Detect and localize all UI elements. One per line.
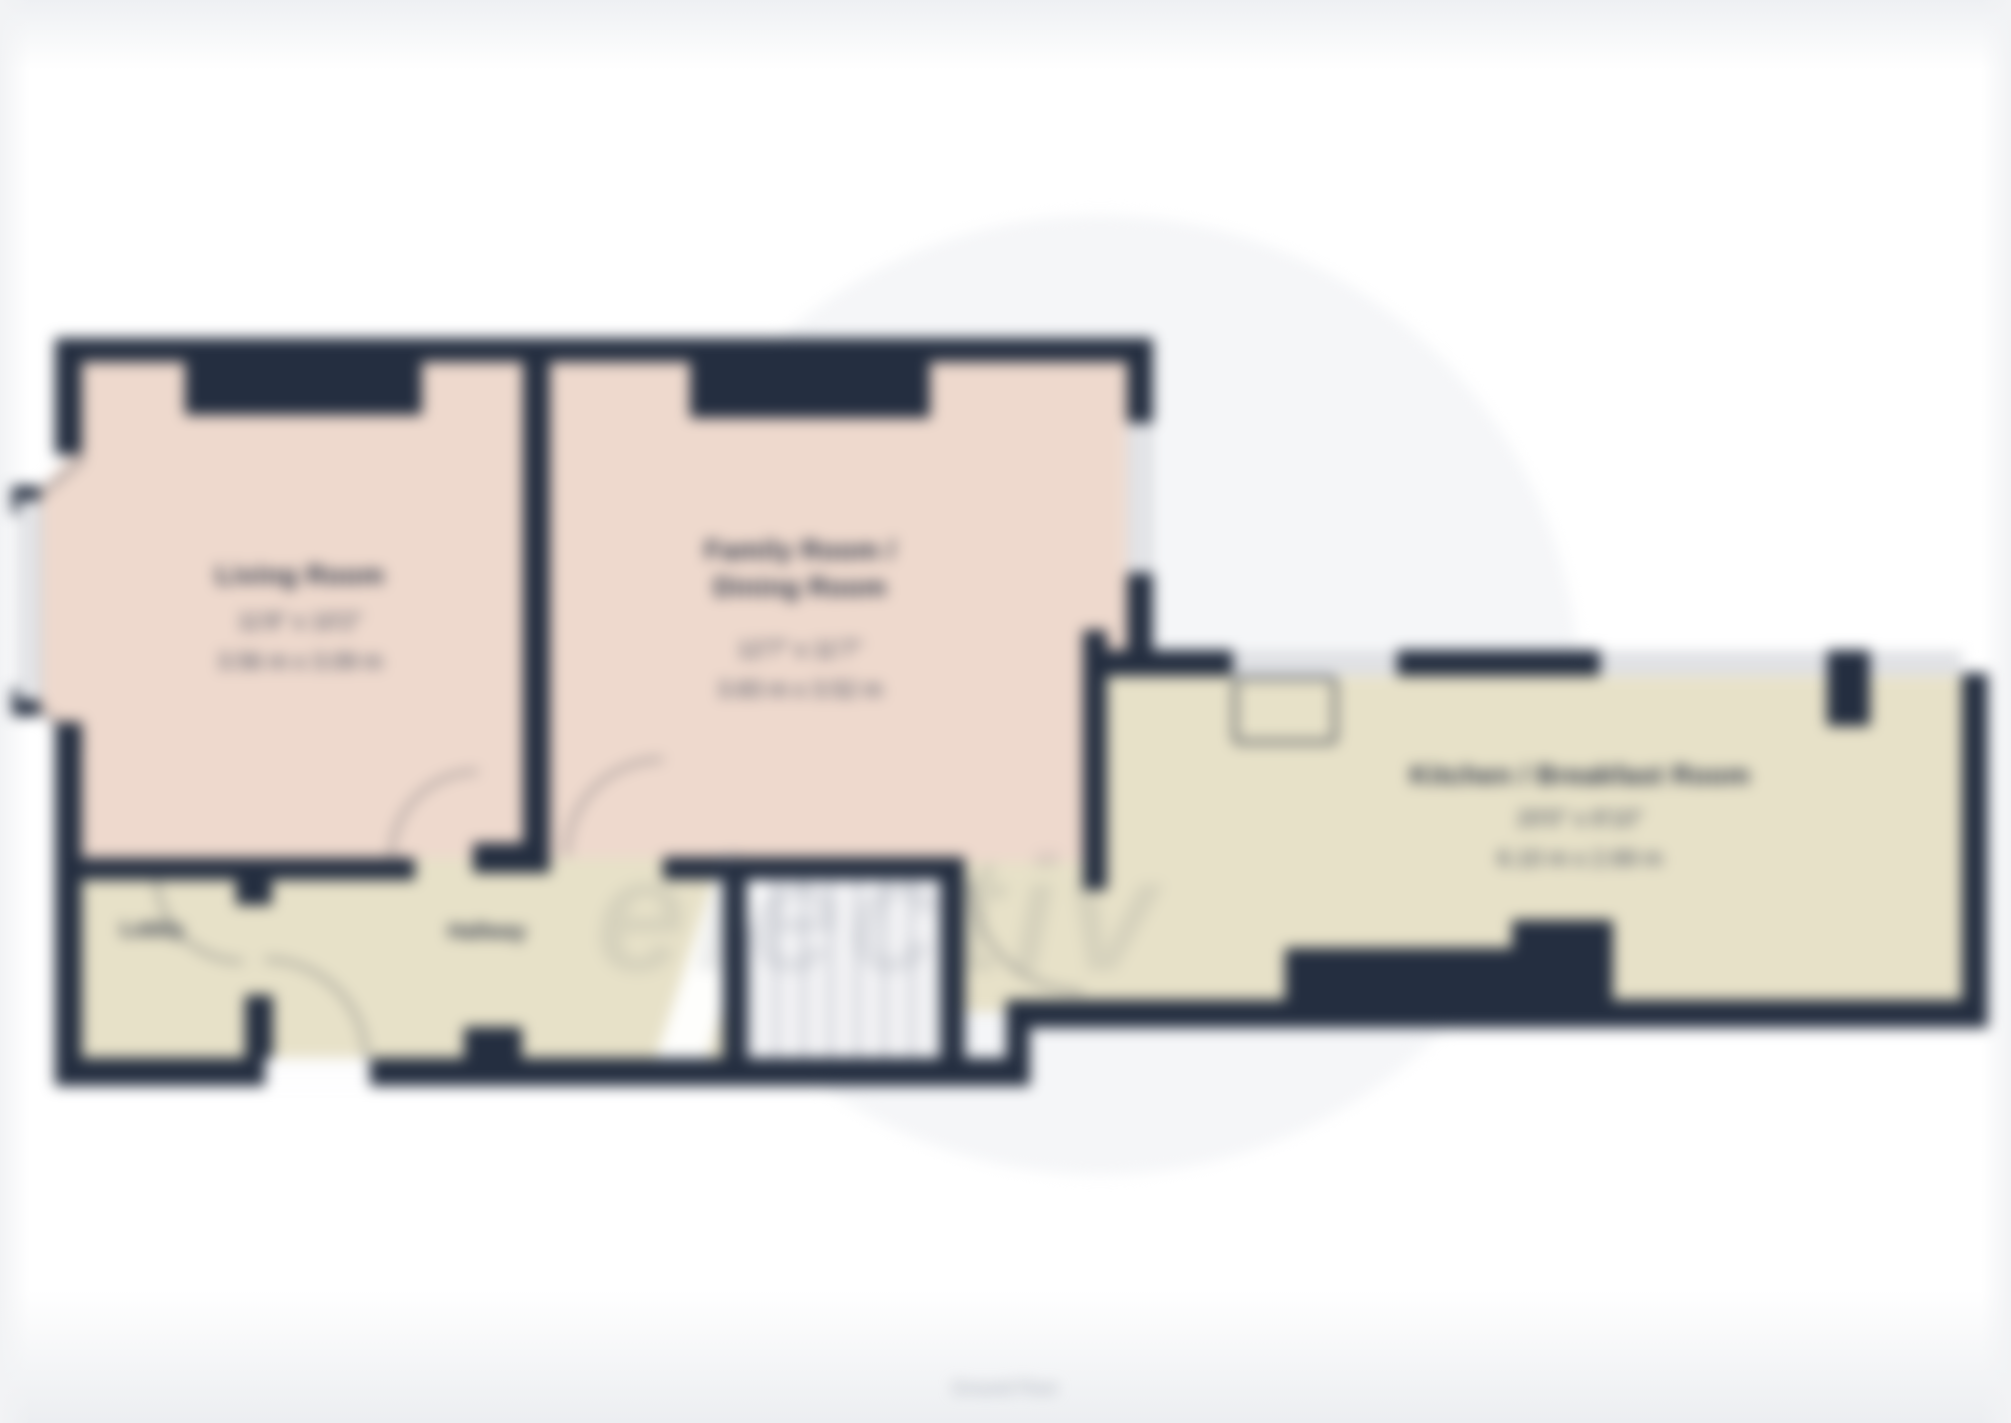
family-right-wall-lower — [1127, 573, 1153, 650]
kitchen-window-2-frame — [1600, 668, 1827, 671]
kitchen-unit-fixture — [1233, 676, 1337, 744]
exterior-wall-left-upper — [55, 338, 82, 455]
living-room-dims-ft: 11'8" x 10'2" — [238, 608, 362, 635]
family-room-label-line2: Dining Room — [713, 572, 886, 603]
family-room-chimney-breast — [690, 362, 930, 418]
floor-caption: Ground Floor — [952, 1378, 1058, 1399]
front-door-opening — [265, 1058, 370, 1086]
kitchen-window-1-frame — [1233, 668, 1397, 671]
family-room-window — [1127, 423, 1153, 573]
family-right-wall-upper — [1127, 338, 1153, 423]
living-room-label: Living Room — [216, 560, 385, 591]
exterior-wall-bottom-left — [55, 1058, 1030, 1086]
kitchen-chimney-left — [1285, 948, 1512, 1005]
kitchen-top-wall-b — [1397, 650, 1600, 676]
living-room-chimney-breast — [185, 362, 422, 415]
partition-living-family — [523, 338, 550, 843]
kitchen-window-3 — [1870, 650, 1962, 676]
living-room-dims-m: 3.56 m x 3.09 m — [218, 648, 383, 675]
kitchen-window-1 — [1233, 650, 1397, 676]
hallway-wall-stub — [464, 1027, 522, 1058]
kitchen-window-3-frame — [1870, 655, 1962, 658]
family-room-dims-ft: 12'7" x 11'7" — [738, 636, 862, 663]
floorplan: electiv Living Room 11'8" x 10'2" 3.56 m… — [0, 0, 2011, 1423]
bay-window-frame — [36, 500, 39, 700]
floorplan-page: { "page": { "caption": "Ground Floor", "… — [0, 0, 2011, 1423]
partition-foot — [473, 843, 550, 873]
kitchen-window-2-frame — [1600, 655, 1827, 658]
watermark-text: electiv — [595, 820, 1165, 1009]
lobby-label: Lobby — [121, 918, 184, 942]
kitchen-top-wall-stub — [1827, 650, 1870, 726]
kitchen-top-wall-a — [1083, 650, 1233, 676]
exterior-wall-top — [55, 338, 1153, 362]
family-room-dims-m: 3.83 m x 3.52 m — [718, 676, 883, 703]
exterior-wall-right — [1962, 673, 1988, 1028]
kitchen-dims-ft: 20'0" x 8'10" — [1517, 805, 1643, 832]
kitchen-dims-m: 6.10 m x 2.69 m — [1498, 845, 1663, 872]
family-room-window-frame — [1132, 423, 1135, 573]
kitchen-label: Kitchen / Breakfast Room — [1410, 760, 1751, 791]
family-room-window-frame — [1146, 423, 1149, 573]
kitchen-chimney-right — [1512, 920, 1613, 1005]
kitchen-window-3-frame — [1870, 668, 1962, 671]
exterior-wall-jog — [1006, 1000, 1030, 1086]
hallway-label: Hallway — [448, 920, 526, 944]
bay-window-frame — [22, 500, 25, 700]
family-room-label-line1: Family Room / — [704, 535, 895, 566]
exterior-wall-left-lower — [55, 722, 82, 1086]
kitchen-window-1-frame — [1233, 655, 1397, 658]
kitchen-window-2 — [1600, 650, 1827, 676]
